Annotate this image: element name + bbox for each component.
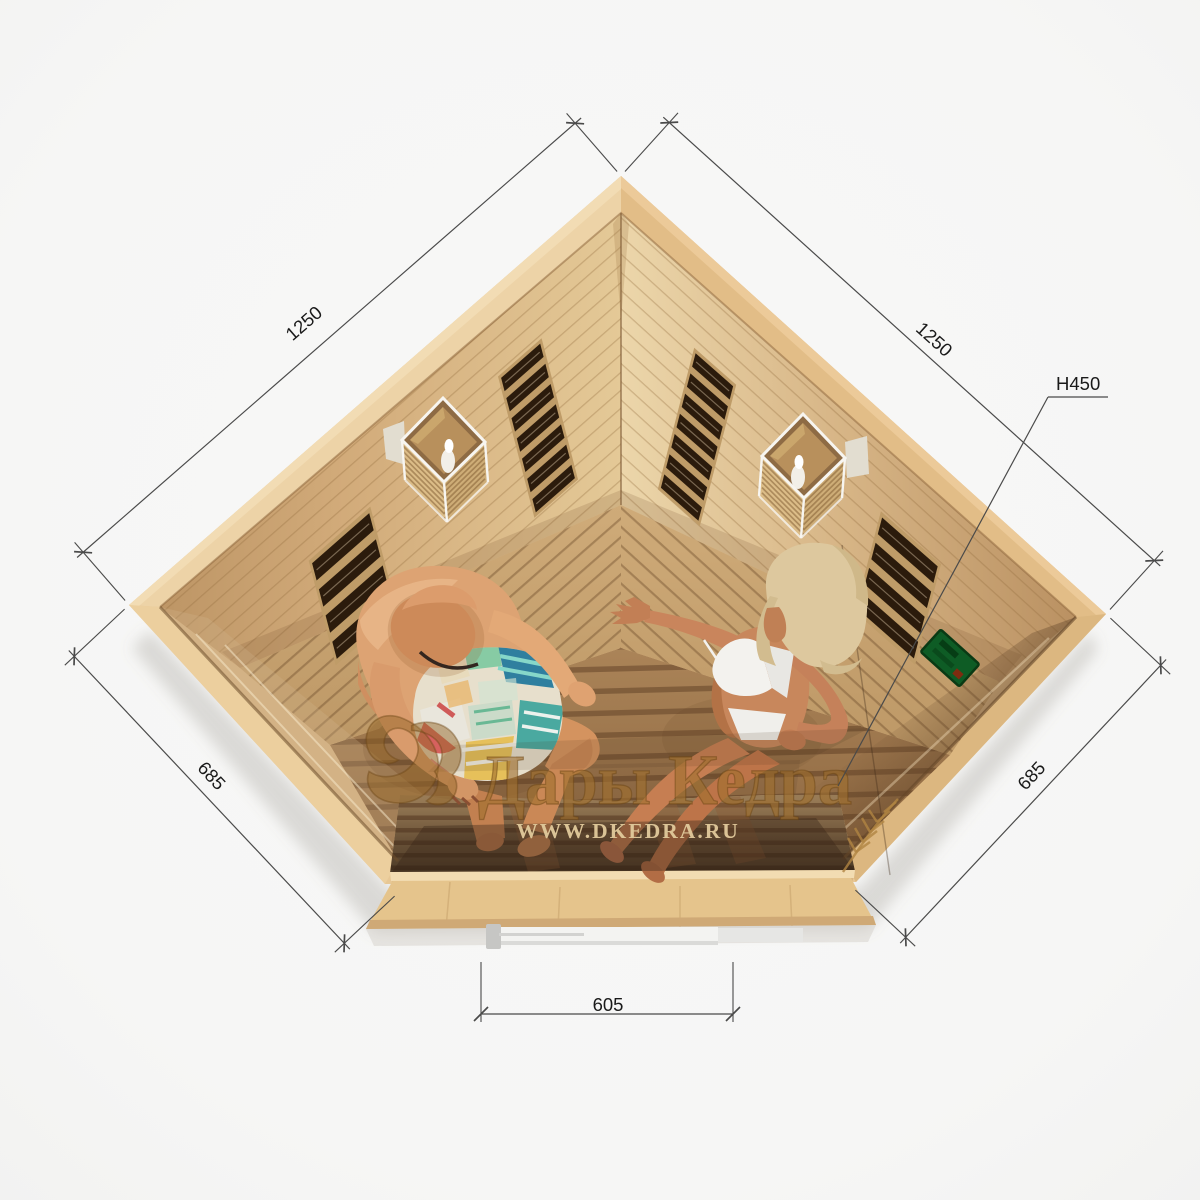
svg-text:H450: H450 [1056, 373, 1100, 394]
svg-text:605: 605 [593, 994, 624, 1015]
svg-text:WWW.DKEDRA.RU: WWW.DKEDRA.RU [516, 819, 740, 843]
svg-text:Дары Кедра: Дары Кедра [478, 740, 852, 820]
